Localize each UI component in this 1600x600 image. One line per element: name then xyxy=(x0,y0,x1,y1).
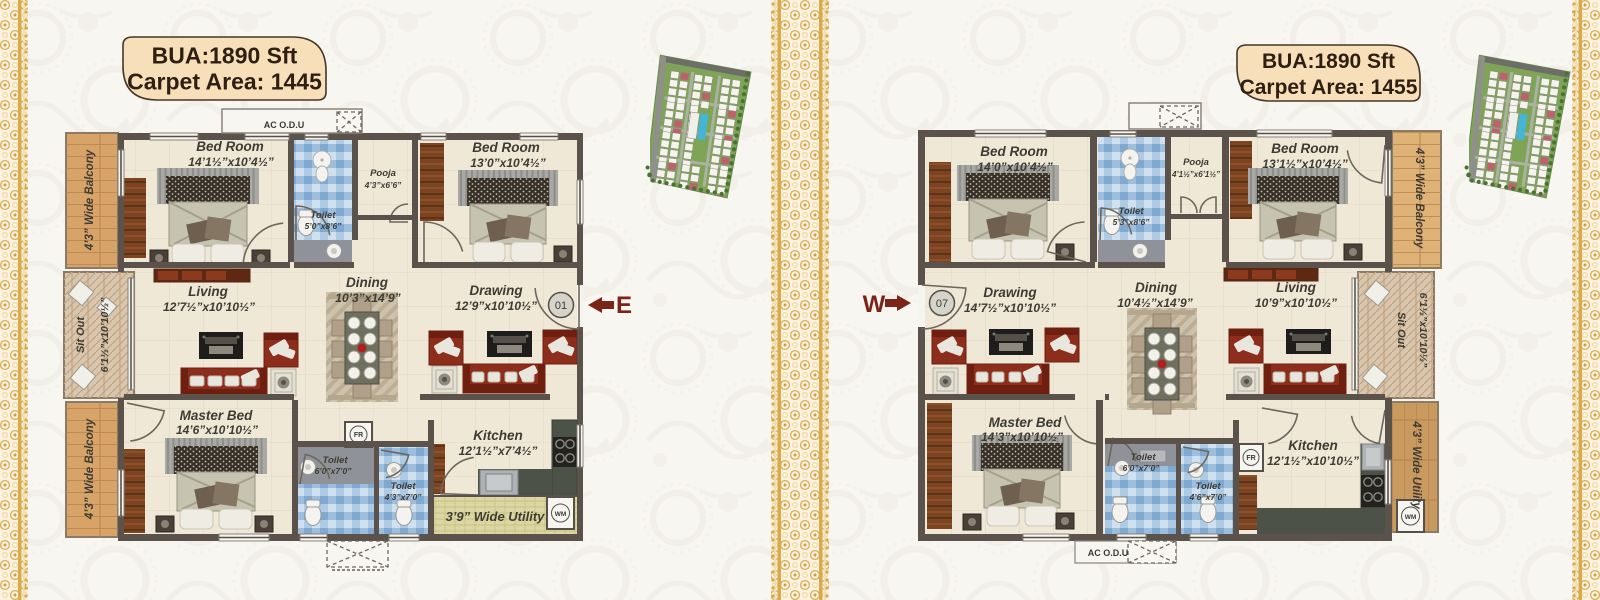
svg-text:Drawing: Drawing xyxy=(469,283,523,298)
svg-text:Bed Room: Bed Room xyxy=(472,140,540,155)
svg-text:12’1½”x7’4½”: 12’1½”x7’4½” xyxy=(459,444,538,458)
svg-text:4’3” Wide Balcony: 4’3” Wide Balcony xyxy=(1413,147,1425,249)
svg-text:Sit Out: Sit Out xyxy=(1395,312,1407,349)
svg-text:10’9”x10’10½”: 10’9”x10’10½” xyxy=(1255,296,1337,310)
svg-text:Toilet: Toilet xyxy=(391,481,417,492)
svg-text:14’3”x10’10½”: 14’3”x10’10½” xyxy=(981,430,1063,444)
svg-text:5’3”x8’6”: 5’3”x8’6” xyxy=(1113,217,1151,227)
svg-text:4’3”x7’0”: 4’3”x7’0” xyxy=(384,492,423,502)
svg-text:10’4½”x14’9”: 10’4½”x14’9” xyxy=(1117,296,1192,310)
svg-text:6’0”x7’0”: 6’0”x7’0” xyxy=(315,466,353,476)
svg-text:E: E xyxy=(616,292,632,319)
svg-text:AC O.D.U: AC O.D.U xyxy=(264,120,305,130)
svg-text:Kitchen: Kitchen xyxy=(473,428,523,443)
svg-text:BUA:1890 Sft: BUA:1890 Sft xyxy=(152,43,298,69)
svg-text:Toilet: Toilet xyxy=(1196,481,1222,492)
svg-text:12’7½”x10’10½”: 12’7½”x10’10½” xyxy=(163,300,255,314)
svg-text:Pooja: Pooja xyxy=(370,168,396,179)
svg-text:14’1½”x10’4½”: 14’1½”x10’4½” xyxy=(188,155,273,169)
svg-text:Bed Room: Bed Room xyxy=(196,139,264,154)
svg-text:FR: FR xyxy=(354,432,363,439)
svg-text:12’1½”x10’10½”: 12’1½”x10’10½” xyxy=(1267,454,1359,468)
svg-text:4’3”x6’6”: 4’3”x6’6” xyxy=(364,180,403,190)
svg-text:Dining: Dining xyxy=(346,275,389,290)
svg-text:12’9”x10’10½”: 12’9”x10’10½” xyxy=(455,299,537,313)
svg-text:Living: Living xyxy=(1276,280,1317,295)
svg-text:3’9” Wide Utility: 3’9” Wide Utility xyxy=(446,509,546,524)
svg-text:14’6”x10’10½”: 14’6”x10’10½” xyxy=(176,423,258,437)
svg-text:4’3” Wide Utility: 4’3” Wide Utility xyxy=(1410,420,1422,509)
svg-text:6’0”x7’0”: 6’0”x7’0” xyxy=(1123,463,1161,473)
svg-text:10’3”x14’9”: 10’3”x14’9” xyxy=(335,291,400,305)
svg-text:14’7½”x10’10½”: 14’7½”x10’10½” xyxy=(964,301,1056,315)
svg-text:W: W xyxy=(863,291,886,318)
svg-text:Dining: Dining xyxy=(1135,280,1178,295)
svg-text:Carpet Area: 1455: Carpet Area: 1455 xyxy=(1240,76,1418,99)
svg-text:WM: WM xyxy=(1405,514,1417,521)
svg-text:Master Bed: Master Bed xyxy=(989,415,1063,430)
svg-text:6’1½”x10’10½”: 6’1½”x10’10½” xyxy=(99,297,111,372)
svg-text:01: 01 xyxy=(555,300,567,312)
svg-text:Carpet Area: 1445: Carpet Area: 1445 xyxy=(127,69,322,95)
svg-text:14’0”x10’4½”: 14’0”x10’4½” xyxy=(977,160,1052,174)
svg-text:Bed Room: Bed Room xyxy=(1271,141,1339,156)
svg-text:07: 07 xyxy=(936,298,948,310)
svg-text:Bed Room: Bed Room xyxy=(980,144,1048,159)
svg-text:AC O.D.U: AC O.D.U xyxy=(1088,548,1129,558)
svg-text:Kitchen: Kitchen xyxy=(1288,438,1338,453)
svg-text:Toilet: Toilet xyxy=(1131,452,1157,463)
svg-text:13’1½”x10’4½”: 13’1½”x10’4½” xyxy=(1262,157,1347,171)
svg-text:4’1½”x6’1½”: 4’1½”x6’1½” xyxy=(1171,170,1220,179)
svg-text:6’1½”x10’10½”: 6’1½”x10’10½” xyxy=(1417,293,1429,368)
svg-text:Toilet: Toilet xyxy=(323,455,349,466)
svg-text:WM: WM xyxy=(555,511,567,518)
svg-text:Living: Living xyxy=(188,284,229,299)
svg-text:Sit Out: Sit Out xyxy=(75,316,87,353)
svg-text:BUA:1890 Sft: BUA:1890 Sft xyxy=(1262,50,1395,73)
svg-text:FR: FR xyxy=(1246,455,1255,462)
svg-text:Drawing: Drawing xyxy=(983,285,1037,300)
svg-text:Toilet: Toilet xyxy=(311,210,337,221)
svg-text:Toilet: Toilet xyxy=(1119,206,1145,217)
svg-text:4’6”x7’0”: 4’6”x7’0” xyxy=(1189,492,1228,502)
svg-text:Pooja: Pooja xyxy=(1183,157,1209,168)
svg-text:4’3” Wide Balcony: 4’3” Wide Balcony xyxy=(84,149,96,251)
svg-text:4’3” Wide Balcony: 4’3” Wide Balcony xyxy=(84,418,96,520)
svg-text:5’0”x8’6”: 5’0”x8’6” xyxy=(305,221,343,231)
svg-text:13’0”x10’4½”: 13’0”x10’4½” xyxy=(470,156,545,170)
svg-text:Master Bed: Master Bed xyxy=(180,408,254,423)
